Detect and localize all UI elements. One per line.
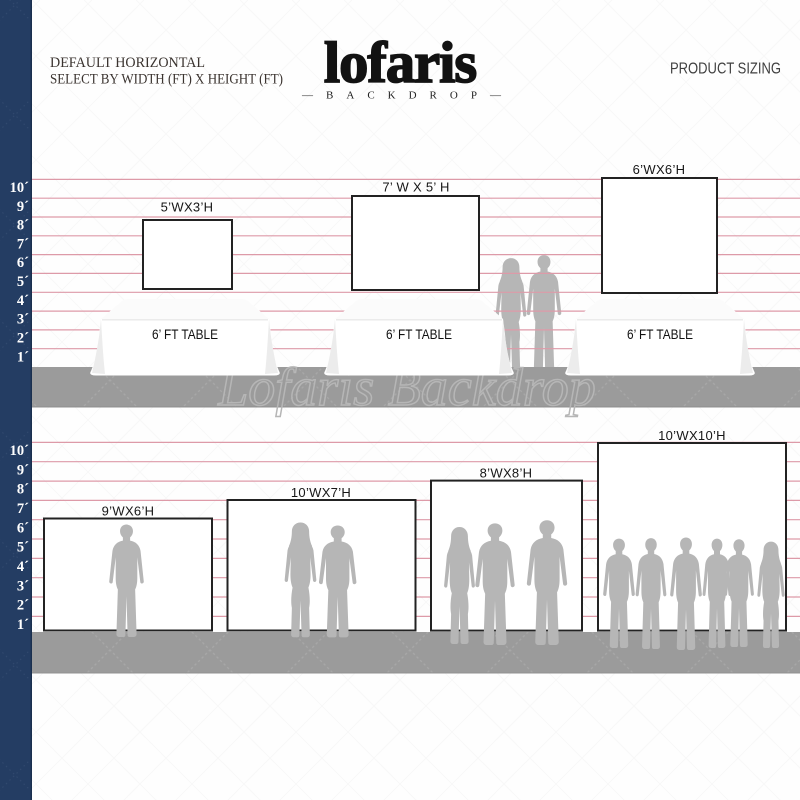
svg-text:PRODUCT SIZING: PRODUCT SIZING bbox=[670, 61, 781, 78]
svg-text:10’WX7’H: 10’WX7’H bbox=[291, 485, 351, 500]
svg-text:7’ W X 5’ H: 7’ W X 5’ H bbox=[382, 180, 449, 195]
svg-text:8´: 8´ bbox=[17, 482, 29, 498]
svg-text:3´: 3´ bbox=[17, 312, 29, 328]
svg-text:9´: 9´ bbox=[17, 199, 29, 215]
svg-text:1´: 1´ bbox=[17, 349, 29, 365]
svg-text:SELECT BY WIDTH (FT) X HEIGHT: SELECT BY WIDTH (FT) X HEIGHT (FT) bbox=[50, 72, 283, 88]
svg-text:6’ FT TABLE: 6’ FT TABLE bbox=[386, 326, 452, 342]
svg-text:10´: 10´ bbox=[10, 443, 30, 459]
svg-text:3´: 3´ bbox=[17, 578, 29, 594]
svg-text:DEFAULT HORIZONTAL: DEFAULT HORIZONTAL bbox=[50, 55, 205, 71]
svg-text:9´: 9´ bbox=[17, 462, 29, 478]
svg-text:lofaris: lofaris bbox=[324, 30, 476, 95]
svg-text:6´: 6´ bbox=[17, 255, 29, 271]
svg-text:4´: 4´ bbox=[17, 559, 29, 575]
svg-text:8’WX8’H: 8’WX8’H bbox=[480, 466, 533, 481]
svg-text:2´: 2´ bbox=[17, 598, 29, 614]
svg-text:2´: 2´ bbox=[17, 331, 29, 347]
svg-text:5´: 5´ bbox=[17, 540, 29, 556]
svg-text:8´: 8´ bbox=[17, 218, 29, 234]
svg-text:5’WX3’H: 5’WX3’H bbox=[161, 200, 214, 215]
svg-text:7´: 7´ bbox=[17, 236, 29, 252]
svg-text:6’ FT TABLE: 6’ FT TABLE bbox=[627, 326, 693, 342]
svg-text:6’WX6’H: 6’WX6’H bbox=[633, 162, 686, 177]
svg-text:6´: 6´ bbox=[17, 520, 29, 536]
svg-text:10´: 10´ bbox=[10, 180, 30, 196]
svg-text:10’WX10’H: 10’WX10’H bbox=[658, 428, 726, 443]
svg-text:6’ FT TABLE: 6’ FT TABLE bbox=[152, 326, 218, 342]
svg-text:5´: 5´ bbox=[17, 274, 29, 290]
svg-text:4´: 4´ bbox=[17, 293, 29, 309]
svg-text:1´: 1´ bbox=[17, 617, 29, 633]
svg-text:—BACKDROP—: —BACKDROP— bbox=[301, 90, 514, 102]
svg-text:7´: 7´ bbox=[17, 501, 29, 517]
svg-text:9’WX6’H: 9’WX6’H bbox=[102, 504, 155, 519]
